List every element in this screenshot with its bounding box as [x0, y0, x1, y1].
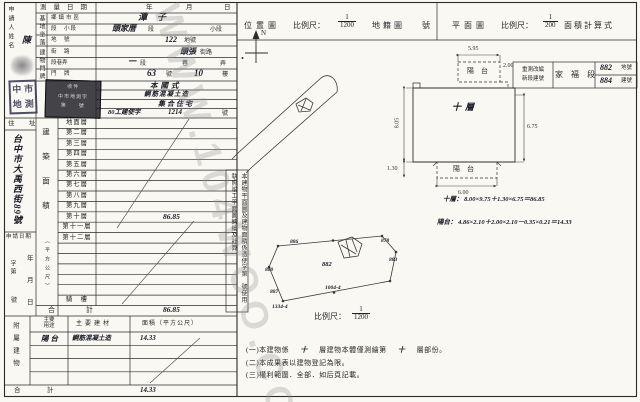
- note-3: (三)權利範圍．全部．如后頁記載。: [246, 372, 364, 379]
- floor-row-label: 第三層: [58, 139, 96, 149]
- parcel-882: 882: [322, 262, 332, 269]
- doc-no-label: 字第: [9, 260, 15, 276]
- floor-row-label: [58, 274, 96, 284]
- doorplate-no: 63: [147, 69, 156, 78]
- floor-row-label: 第十二層: [58, 232, 96, 242]
- parcel-value: 122: [165, 36, 177, 44]
- map-no-label: 號: [422, 22, 430, 30]
- doorplate-floor: 10: [194, 69, 203, 78]
- note-1-mid: 層建物本體僅測繪第: [319, 346, 387, 354]
- seal-char: 地: [13, 100, 22, 109]
- resurvey-label-l2: 新段建號: [522, 76, 544, 82]
- survey-year-label: 年: [146, 5, 153, 12]
- subsection-print: 小段: [210, 27, 222, 33]
- street-value: 頭張: [180, 48, 196, 56]
- applicant-name-value: 陳: [22, 36, 31, 45]
- floor-row-label: 第二層: [58, 128, 96, 138]
- resurvey-parcel-suffix: 地號: [621, 66, 632, 72]
- official-seal: 中 市 地 測: [8, 80, 37, 115]
- building-material-value: 鋼筋混凝土造: [144, 92, 189, 99]
- segment-label: 段巷弄: [51, 61, 68, 67]
- plan-scale-fraction: 1 200: [543, 14, 558, 29]
- note-2: (二)本成果表以建物登記為限。: [246, 360, 349, 367]
- door-group-label: 建物門牌: [38, 49, 44, 81]
- floor-row-label: 第四層: [58, 149, 96, 159]
- floor-total-label: 合 計: [48, 307, 105, 314]
- parcel-886: 886: [290, 240, 298, 246]
- area-calc-label: 面積計算式: [564, 22, 614, 30]
- formula-balcony: 陽台： 4.86×2.10＋2.00×2.10－0.35×0.21＝14.33: [437, 220, 572, 227]
- segment-print1: 段: [140, 61, 146, 67]
- floor-row-label: 第十一層: [58, 222, 96, 232]
- segment-print2: 巷: [182, 61, 188, 67]
- usage-permit-suffix: 號: [222, 111, 228, 117]
- doorplate-no-suffix: 號: [166, 72, 172, 78]
- street-label: 街 路: [51, 50, 71, 56]
- floor10-area-value: 86.85: [163, 213, 180, 221]
- annex-total-label: 合 計: [14, 388, 64, 395]
- bottom-scale-label: 比例尺：: [314, 313, 346, 321]
- building-use-value: 集合住宅: [158, 101, 194, 108]
- section-print: 段: [148, 27, 154, 33]
- floor-row-label: [58, 264, 96, 274]
- dim-top-side: 2.00: [503, 63, 514, 69]
- receipt-stamp-line: 第 號: [47, 101, 99, 112]
- street-print: 街路: [200, 50, 212, 56]
- resurvey-parcel-no: 882: [600, 64, 612, 72]
- district-label: 鄉鎮市區: [51, 16, 81, 22]
- annex-row-area: 14.33: [140, 335, 156, 342]
- receipt-stamp: 收件 中市地測字 第 號: [45, 79, 102, 118]
- parcel-887: 887: [270, 290, 278, 296]
- formula-floor10-expr: 8.00×9.75＋1.30×6.75＝86.85: [464, 196, 545, 203]
- usage-permit-no: 1214: [168, 109, 182, 116]
- plan-balcony-bottom-label: 陽 台: [453, 166, 474, 173]
- floor-row-label: 地面層: [58, 118, 96, 128]
- cadastral-map-label: 地籍圖: [372, 22, 405, 30]
- parcel-1334-4: 1334-4: [272, 305, 288, 311]
- floor-area-unit-label: （平方公尺）: [44, 238, 49, 292]
- floor-row-label: 第七層: [58, 180, 96, 190]
- plan-balcony-top-label: 陽 台: [467, 68, 488, 75]
- formula-floor10: 十層： 8.00×9.75＋1.30×6.75＝86.85: [443, 197, 545, 204]
- illegible-stamp: [11, 56, 33, 75]
- dim-left: 8.05: [394, 118, 400, 129]
- note-1: (一)本建物係 十 層建物本體僅測繪第 十 層部份。: [246, 347, 447, 354]
- parcel-878: 878: [381, 239, 389, 245]
- resurvey-label-l1: 重測改編: [522, 67, 544, 73]
- district-value: 潭子: [138, 13, 176, 22]
- note-1-hand2: 十: [398, 346, 406, 354]
- annex-side-label: 附屬建物: [11, 322, 18, 372]
- annex-header-area: 面積（平方公尺）: [142, 321, 198, 327]
- floor-plan-sketch: [413, 62, 515, 178]
- resurvey-section-name: 家 福 段: [555, 71, 595, 79]
- dim-left-small: 1.30: [387, 166, 398, 172]
- segment-print3: 弄: [220, 61, 226, 67]
- plan-scale-label: 比例尺：: [501, 22, 533, 30]
- plan-title: 平面圖: [452, 22, 488, 30]
- location-sketch: [232, 76, 337, 173]
- section-label: 段 小段: [51, 27, 77, 33]
- seal-char: 市: [24, 85, 33, 94]
- doc-no-suffix: 號: [11, 298, 17, 304]
- building-style-value: 本國式: [150, 82, 182, 90]
- floor-row-label: 第十層: [58, 212, 96, 222]
- apply-day-label: 日: [27, 300, 34, 307]
- note-1-pre: (一)本建物係: [246, 346, 289, 354]
- parcel-883: 883: [389, 258, 397, 264]
- floor-row-label: [58, 285, 96, 295]
- seal-char: 測: [25, 100, 34, 109]
- scale-numerator: 1: [549, 14, 553, 21]
- segment-value: 一: [128, 58, 136, 66]
- scale-numerator: 1: [345, 14, 349, 21]
- doorplate-floor-suffix: 樓: [222, 72, 228, 78]
- formula-floor10-name: 十層：: [443, 196, 463, 203]
- parcel-880: 880: [265, 268, 273, 274]
- dim-top: 5.95: [468, 46, 479, 52]
- annex-row-material: 鋼筋混凝土造: [72, 336, 111, 343]
- north-label: N: [261, 30, 266, 37]
- floor-row-label: [58, 253, 96, 263]
- survey-day-label: 日: [224, 5, 231, 12]
- address-value: 台中市大禹西街89號: [12, 134, 21, 230]
- annex-header-use: 主要 用途: [34, 318, 64, 329]
- parcel-label: 地 號: [51, 38, 71, 44]
- bottom-scale-fraction: 1 1200: [352, 306, 370, 321]
- annex-header-material: 主要建材: [76, 321, 112, 327]
- parcel-print: 地號: [184, 38, 196, 44]
- floor-row-label: 第五層: [58, 160, 96, 170]
- apply-date-label: 申請日期: [6, 235, 32, 241]
- annex-header-use-l2: 用途: [43, 323, 54, 329]
- floor-total-value: 86.85: [163, 306, 180, 314]
- formula-balcony-name: 陽台：: [437, 219, 457, 226]
- resurvey-building-suffix: 建號: [621, 79, 632, 85]
- note-1-hand1: 十: [300, 346, 308, 354]
- floor-rows: 地面層 第二層 第三層 第四層 第五層 第六層 第七層 第八層 第九層 第十層 …: [58, 118, 96, 305]
- apply-year-label: 年: [27, 256, 34, 263]
- resurvey-building-no: 884: [600, 77, 612, 85]
- annex-total-value: 14.33: [140, 387, 156, 394]
- survey-date-label: 測量日期: [40, 5, 94, 12]
- section-value: 頭家厝: [112, 25, 136, 33]
- annex-row-use: 陽台: [41, 335, 60, 343]
- survey-form-sheet: 申請人姓名 陳 中 市 地 測 住 址 台中市大禹西街89號 申請日期 年 月 …: [0, 0, 640, 402]
- dim-right: 6.75: [527, 124, 538, 130]
- floor-row-label: [58, 243, 96, 253]
- survey-month-label: 月: [186, 5, 193, 12]
- scale-denominator: 200: [543, 21, 558, 29]
- address-label: 住 址: [8, 121, 40, 128]
- doorplate-label: 門 牌: [51, 72, 71, 78]
- plan-floor-label: 十層: [452, 103, 478, 112]
- location-scale-fraction: 1 1200: [338, 14, 356, 29]
- floor-area-column-label: 建築面積: [42, 128, 50, 226]
- scale-denominator: 1200: [352, 313, 370, 321]
- seal-char: 中: [12, 85, 21, 94]
- floor-row-label: 騎 樓: [58, 295, 96, 305]
- cadastral-sketch: [268, 235, 397, 302]
- applicant-name-label: 申請人姓名: [7, 6, 13, 51]
- site-group-label: 基地坐落: [38, 15, 44, 47]
- location-scale-label: 比例尺：: [293, 22, 325, 30]
- disclaimer-text: 本建物平面圖及建物面積係憑使字第 號使用執照竣工平面圖轉繪及計算: [228, 173, 248, 309]
- formula-balcony-expr: 4.86×2.10＋2.00×2.10－0.35×0.21＝14.33: [458, 219, 572, 226]
- scale-denominator: 1200: [338, 21, 356, 29]
- parcel-1004-4: 1004-4: [325, 286, 341, 292]
- scale-numerator: 1: [359, 306, 363, 313]
- floor-row-label: 第九層: [58, 201, 96, 211]
- resurvey-label: 重測改編 新段建號: [514, 66, 552, 84]
- floor-row-label: 第六層: [58, 170, 96, 180]
- note-1-post: 層部份。: [417, 346, 447, 354]
- floor-row-label: 第八層: [58, 191, 96, 201]
- usage-permit-value: 80工建使字: [108, 110, 141, 117]
- apply-month-label: 月: [27, 278, 34, 285]
